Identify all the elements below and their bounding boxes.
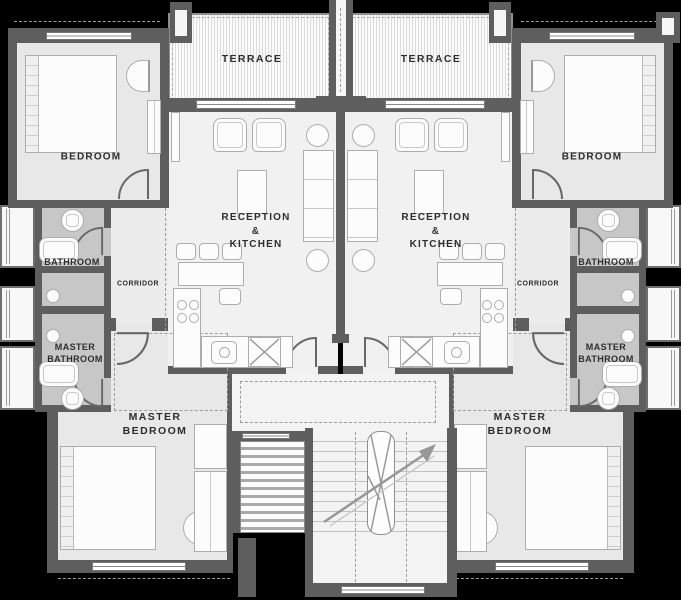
- wall: [565, 318, 577, 331]
- wardrobe: [194, 471, 227, 552]
- tv-console: [171, 112, 180, 162]
- tv-console: [501, 112, 510, 162]
- window-bay: [0, 346, 35, 410]
- side-table: [352, 124, 375, 147]
- door-arc-master-bedroom: [116, 331, 150, 365]
- bed: [25, 55, 117, 153]
- armchair-cushion: [438, 122, 464, 148]
- washbasin: [597, 387, 620, 410]
- wall: [343, 366, 363, 374]
- room-label-terrace-right: TERRACE: [401, 52, 462, 66]
- basin-bowl: [602, 214, 615, 227]
- basin-bowl: [602, 392, 615, 405]
- tub-inner: [43, 365, 75, 383]
- bay-glazing: [671, 350, 675, 406]
- wall: [623, 405, 634, 573]
- door-arc-bedroom: [118, 168, 150, 200]
- floor-plan: TERRACE TERRACE BEDROOM BEDROOM RECEPTIO…: [0, 0, 681, 600]
- window: [92, 562, 186, 571]
- roof-dashed-line: [14, 21, 160, 22]
- armchair-cushion: [256, 122, 282, 148]
- wall: [513, 200, 673, 208]
- bed: [564, 55, 656, 153]
- overhang-dashed-line: [451, 578, 623, 579]
- window: [385, 100, 485, 109]
- room-label-master-bedroom-right: MASTER BEDROOM: [488, 410, 553, 438]
- coffee-table: [237, 170, 267, 214]
- sink-basin: [219, 347, 230, 358]
- shaft-wall: [346, 0, 353, 100]
- room-label-bathroom-right: BATHROOM: [578, 256, 634, 268]
- bay-glazing: [6, 209, 10, 264]
- wall: [577, 306, 639, 314]
- wall: [233, 431, 240, 537]
- shaft-floor: [336, 0, 346, 98]
- room-label-bedroom-left: BEDROOM: [61, 150, 122, 164]
- washbasin: [597, 209, 620, 232]
- window: [495, 562, 589, 571]
- wall: [8, 200, 168, 208]
- stove-burner: [177, 300, 187, 310]
- wall: [570, 256, 577, 378]
- bed-headboard: [607, 447, 620, 549]
- room-label-reception-right: RECEPTION & KITCHEN: [401, 211, 470, 252]
- sofa: [303, 150, 334, 242]
- stove-burner: [482, 300, 492, 310]
- wall: [8, 28, 17, 208]
- stove-burner: [494, 300, 504, 310]
- window: [46, 32, 132, 40]
- wall: [104, 200, 111, 228]
- dishwasher-x-box: [400, 337, 433, 367]
- chimney-flue: [175, 10, 187, 36]
- kitchen-sink: [211, 341, 237, 364]
- stove-burner: [189, 300, 199, 310]
- window-bay: [0, 286, 35, 342]
- dining-table: [437, 262, 503, 286]
- coffee-table: [414, 170, 444, 214]
- wardrobe-divider: [154, 101, 155, 153]
- chimney-flue: [662, 18, 674, 35]
- toilet: [621, 289, 635, 303]
- stove-burner: [189, 313, 199, 323]
- side-table: [352, 249, 375, 272]
- shaft-dashed: [340, 8, 341, 92]
- wardrobe-divider: [470, 472, 471, 551]
- armchair: [395, 118, 429, 152]
- sofa: [347, 150, 378, 242]
- armchair: [213, 118, 247, 152]
- armchair-cushion: [399, 122, 425, 148]
- window-bay: [646, 346, 681, 410]
- bed: [525, 446, 621, 550]
- dining-chair: [176, 243, 196, 260]
- corridor-floor: [111, 208, 168, 331]
- party-wall-cap: [332, 334, 349, 343]
- room-label-master-bathroom-right: MASTER BATHROOM: [578, 341, 634, 365]
- door-arc-master-bedroom: [531, 331, 565, 365]
- round-chair: [126, 60, 150, 92]
- room-label-terrace-left: TERRACE: [222, 52, 283, 66]
- bay-glazing: [6, 350, 10, 406]
- hall-dashed-zone: [240, 381, 436, 423]
- room-label-corridor-right: CORRIDOR: [517, 279, 559, 288]
- bay-glazing: [6, 290, 10, 338]
- party-wall: [336, 108, 345, 338]
- room-label-reception-left: RECEPTION & KITCHEN: [221, 211, 290, 252]
- bed: [60, 446, 156, 550]
- stair-direction-arrow: [316, 438, 442, 530]
- bay-glazing: [671, 209, 675, 264]
- room-label-bathroom-left: BATHROOM: [44, 256, 100, 268]
- stove-burner: [482, 313, 492, 323]
- basin-bowl: [66, 214, 79, 227]
- corridor-dashed-line: [165, 208, 166, 331]
- window-bay: [646, 286, 681, 342]
- window: [549, 32, 635, 40]
- stair-wall: [305, 428, 313, 597]
- corridor-floor: [513, 208, 570, 331]
- tub-inner: [606, 365, 638, 383]
- side-table: [306, 124, 329, 147]
- side-table: [306, 249, 329, 272]
- wardrobe-divider: [526, 101, 527, 153]
- bed-headboard: [61, 447, 74, 549]
- dining-chair: [219, 288, 241, 305]
- armchair: [434, 118, 468, 152]
- wardrobe: [454, 471, 487, 552]
- wall: [104, 318, 116, 331]
- bed-headboard: [26, 56, 39, 152]
- stove-burner: [177, 313, 187, 323]
- wardrobe: [454, 424, 487, 469]
- roof-dashed-line: [521, 21, 667, 22]
- window: [242, 433, 290, 439]
- wardrobe-divider: [210, 472, 211, 551]
- wall: [570, 200, 577, 228]
- corridor-dashed-line: [515, 208, 516, 331]
- room-label-bedroom-right: BEDROOM: [562, 150, 623, 164]
- window-bay: [646, 205, 681, 268]
- wall: [42, 306, 104, 314]
- dining-chair: [440, 288, 462, 305]
- dining-chair: [199, 243, 219, 260]
- washbasin: [61, 209, 84, 232]
- window-bay: [0, 205, 35, 268]
- bed-headboard: [642, 56, 655, 152]
- room-label-corridor-left: CORRIDOR: [117, 279, 159, 288]
- armchair: [252, 118, 286, 152]
- stove-burner: [494, 313, 504, 323]
- service-stair-treads: [240, 441, 305, 533]
- room-label-master-bathroom-left: MASTER BATHROOM: [47, 341, 103, 365]
- wardrobe: [194, 424, 227, 469]
- wardrobe: [520, 100, 534, 154]
- dishwasher-x-box: [248, 337, 281, 367]
- room-label-master-bedroom-left: MASTER BEDROOM: [123, 410, 188, 438]
- basin-bowl: [66, 392, 79, 405]
- wall: [47, 405, 58, 573]
- stair-wall: [447, 428, 457, 597]
- bay-glazing: [671, 290, 675, 338]
- window: [341, 586, 425, 594]
- wall: [664, 28, 673, 208]
- washbasin: [61, 387, 84, 410]
- chimney-flue: [494, 10, 506, 36]
- kitchen-sink: [444, 341, 470, 364]
- wall: [160, 28, 169, 208]
- wall: [238, 538, 256, 597]
- shaft-wall: [329, 0, 336, 100]
- armchair-cushion: [217, 122, 243, 148]
- window: [196, 100, 296, 109]
- sink-basin: [451, 347, 462, 358]
- toilet: [46, 289, 60, 303]
- door-arc-bedroom: [531, 168, 563, 200]
- wardrobe: [147, 100, 161, 154]
- dining-table: [178, 262, 244, 286]
- overhang-dashed-line: [58, 578, 230, 579]
- dining-chair: [485, 243, 505, 260]
- wall: [104, 256, 111, 378]
